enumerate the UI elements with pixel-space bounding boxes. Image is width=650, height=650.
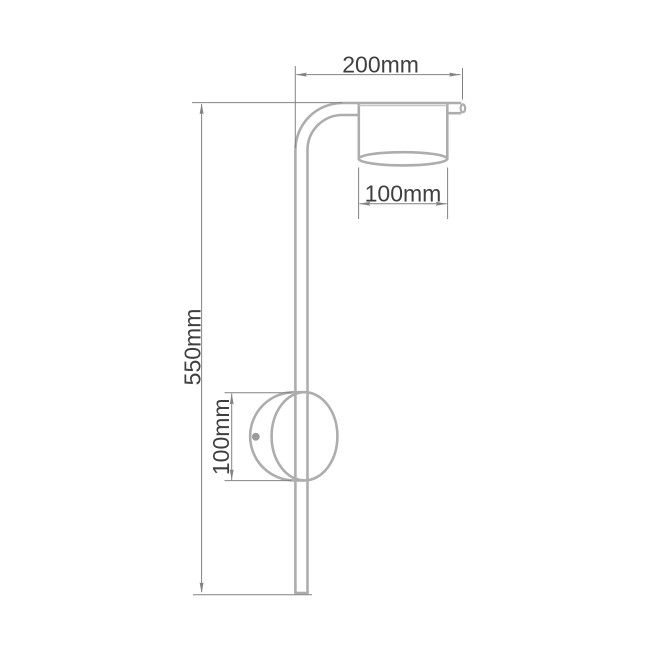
svg-text:200mm: 200mm — [342, 52, 419, 78]
svg-text:550mm: 550mm — [180, 309, 206, 386]
svg-text:100mm: 100mm — [208, 398, 234, 475]
svg-text:100mm: 100mm — [365, 181, 442, 207]
